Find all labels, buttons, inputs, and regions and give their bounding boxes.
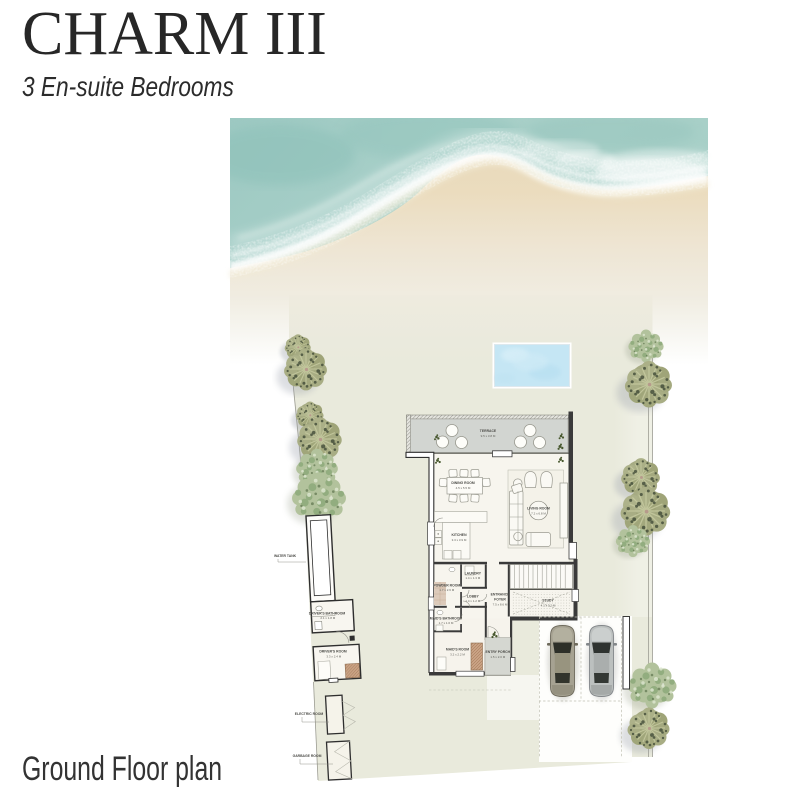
svg-text:ENTRANCE: ENTRANCE — [491, 593, 511, 597]
svg-text:WATER TANK: WATER TANK — [274, 554, 297, 558]
svg-text:7.2 x 6.8 M: 7.2 x 6.8 M — [531, 512, 546, 516]
svg-text:1.7 x 1.6 M: 1.7 x 1.6 M — [439, 621, 454, 625]
svg-text:4.1 x 3.2 M: 4.1 x 3.2 M — [541, 604, 556, 608]
svg-text:MAID'S BATHROOM: MAID'S BATHROOM — [430, 617, 463, 621]
svg-text:KITCHEN: KITCHEN — [451, 533, 467, 537]
svg-text:1.4 x 1.2 M: 1.4 x 1.2 M — [465, 599, 480, 603]
svg-text:DINING ROOM: DINING ROOM — [451, 481, 475, 485]
svg-text:FOYER: FOYER — [494, 598, 506, 602]
svg-text:1.7 x 2.6 M: 1.7 x 2.6 M — [439, 588, 454, 592]
svg-text:ENTRY PORCH: ENTRY PORCH — [486, 650, 511, 654]
svg-text:1.4 x 1.3 M: 1.4 x 1.3 M — [465, 576, 480, 580]
svg-text:9.5 x 3.8 M: 9.5 x 3.8 M — [481, 434, 496, 438]
svg-text:DRIVER'S ROOM: DRIVER'S ROOM — [319, 650, 347, 654]
svg-text:STUDY: STUDY — [542, 599, 554, 603]
svg-text:POWDER ROOM: POWDER ROOM — [433, 584, 460, 588]
svg-text:MAID'S ROOM: MAID'S ROOM — [446, 648, 469, 652]
svg-text:7.5 x 8.6 M: 7.5 x 8.6 M — [493, 603, 508, 607]
svg-text:TERRACE: TERRACE — [480, 429, 497, 433]
svg-text:1.5 x 2.0 M: 1.5 x 2.0 M — [490, 655, 505, 659]
svg-text:3.3 x 2.4 M: 3.3 x 2.4 M — [326, 655, 341, 659]
svg-text:LIVING ROOM: LIVING ROOM — [527, 507, 550, 511]
svg-text:4.5 x 5.5 M: 4.5 x 5.5 M — [456, 486, 471, 490]
svg-text:3.3 x 3.9 M: 3.3 x 3.9 M — [452, 538, 467, 542]
svg-text:ELECTRIC ROOM: ELECTRIC ROOM — [295, 712, 324, 716]
svg-text:GARBAGE ROOM: GARBAGE ROOM — [293, 754, 322, 758]
svg-text:LAUNDRY: LAUNDRY — [465, 572, 482, 576]
svg-text:DRIVER'S BATHROOM: DRIVER'S BATHROOM — [309, 612, 346, 616]
svg-text:3.2 x 2.2 M: 3.2 x 2.2 M — [450, 653, 465, 657]
svg-text:2.1 x 1.8 M: 2.1 x 1.8 M — [320, 616, 335, 620]
svg-text:LOBBY: LOBBY — [467, 595, 480, 599]
